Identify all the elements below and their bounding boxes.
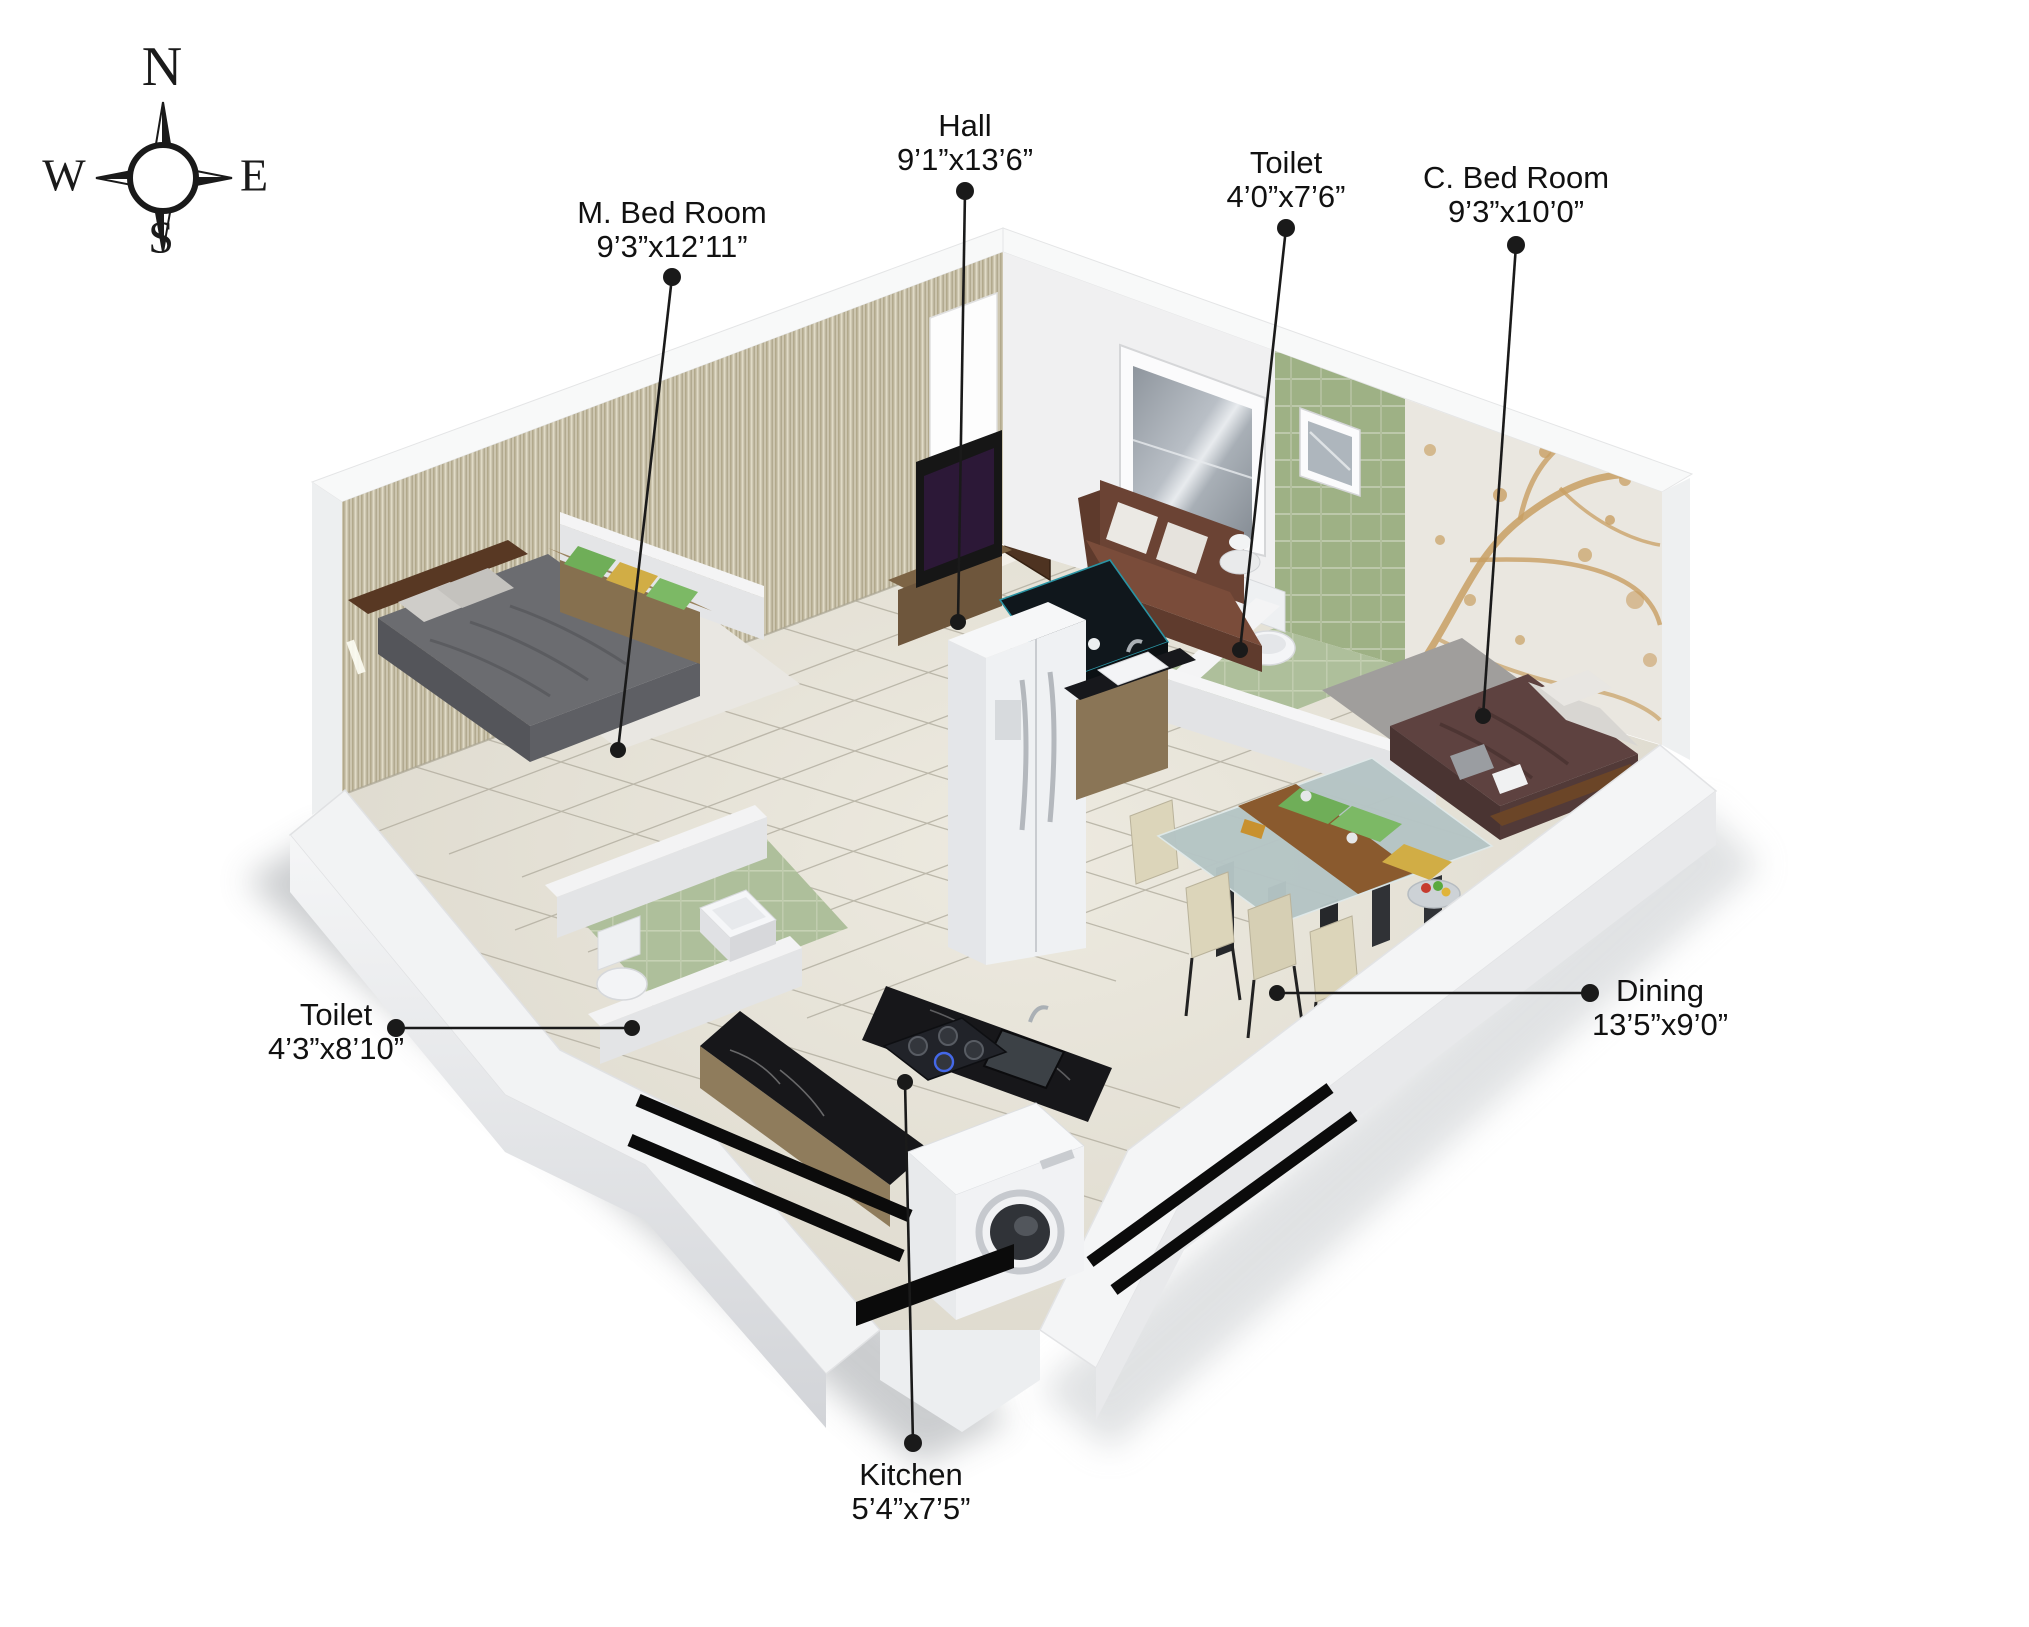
m-bed-room-name: M. Bed Room [577,195,767,230]
refrigerator [948,602,1086,965]
m-bed-room-size: 9’3”x12’11” [596,229,747,264]
dining-name: Dining [1616,973,1704,1008]
hall-size: 9’1”x13’6” [897,142,1033,177]
fridge-dispenser [995,700,1021,740]
hall-name: Hall [938,108,991,143]
table-lamp [1229,534,1251,550]
c-bed-room-name: C. Bed Room [1423,160,1609,195]
kitchen-name: Kitchen [859,1457,962,1492]
compass-east-letter: E [240,150,268,201]
floor-plan-page: N W E S M. Bed Room 9’3”x12’11” Hall 9’1… [0,0,2029,1627]
toilet-green-tile-wall [1275,351,1405,667]
compass-west-letter: W [42,150,86,201]
toilet-common-size: 4’3”x8’10” [268,1031,404,1066]
toilet-attached-name: Toilet [1250,145,1323,180]
cup [1347,833,1358,844]
compass-north-letter: N [142,36,182,98]
compass-south-letter: S [148,212,174,263]
east-wall-endcap [1662,478,1690,760]
floor-plan-render: N W E S M. Bed Room 9’3”x12’11” Hall 9’1… [0,0,2029,1627]
cup [1301,791,1312,802]
c-bed-room-size: 9’3”x10’0” [1448,194,1584,229]
toilet-attached-size: 4’0”x7’6” [1227,179,1346,214]
side-table [1220,550,1260,574]
compass-rose: N W E S [42,36,268,263]
dining-size: 13’5”x9’0” [1592,1007,1728,1042]
compass-circle [130,145,196,211]
kitchen-size: 5’4”x7’5” [852,1491,971,1526]
toilet-common-name: Toilet [300,997,373,1032]
